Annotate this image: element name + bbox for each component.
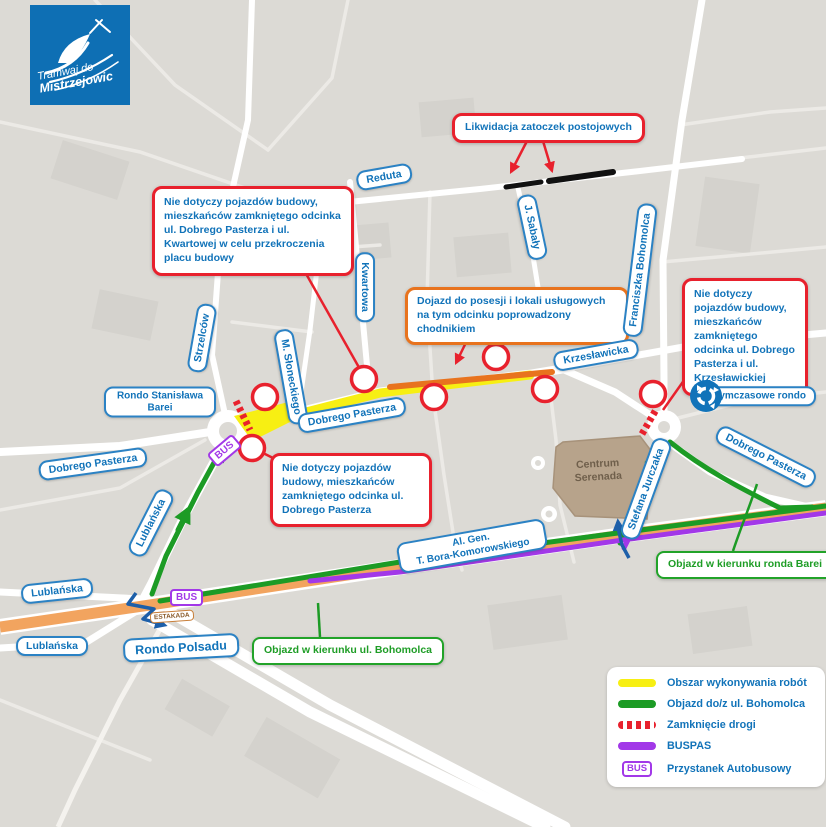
street-label-rondo-barei: Rondo Stanisława Barei bbox=[104, 387, 216, 418]
legend-label-detour: Objazd do/z ul. Bohomolca bbox=[667, 698, 805, 710]
callout-construction-exception-kwartowa: Nie dotyczy pojazdów budowy, mieszkańców… bbox=[152, 186, 354, 276]
roundabout-icon bbox=[688, 378, 724, 414]
legend-swatch-detour bbox=[617, 700, 657, 708]
legend-label-closure: Zamknięcie drogi bbox=[667, 719, 756, 731]
bus-stop-badge-polsadu: BUS bbox=[170, 589, 203, 606]
legend-swatch-buspas bbox=[617, 742, 657, 750]
serenada-label: Centrum Serenada bbox=[562, 456, 633, 486]
legend-row-detour: Objazd do/z ul. Bohomolca bbox=[617, 698, 815, 710]
callout-detour-bohomolca: Objazd w kierunku ul. Bohomolca bbox=[252, 637, 444, 665]
legend-row-bus-stop: BUS Przystanek Autobusowy bbox=[617, 761, 815, 777]
callout-detour-barei: Objazd w kierunku ronda Barei bbox=[656, 551, 826, 579]
legend-label-works: Obszar wykonywania robót bbox=[667, 677, 807, 689]
legend-row-buspas: BUSPAS bbox=[617, 740, 815, 752]
street-label-lublanska-west-2: Lublańska bbox=[16, 636, 88, 656]
callout-construction-exception-pasterza: Nie dotyczy pojazdów budowy, mieszkańców… bbox=[270, 453, 432, 527]
callout-parking-bays-removal: Likwidacja zatoczek postojowych bbox=[452, 113, 645, 143]
project-logo: Tramwaj do Mistrzejowic bbox=[30, 5, 130, 105]
street-label-kwartowa: Kwartowa bbox=[355, 252, 375, 322]
map-canvas: Tramwaj do Mistrzejowic Nie dotyczy poja… bbox=[0, 0, 826, 827]
callout-sidewalk-access: Dojazd do posesji i lokali usługowych na… bbox=[405, 287, 629, 345]
legend-swatch-bus-stop: BUS bbox=[617, 761, 657, 777]
legend-label-buspas: BUSPAS bbox=[667, 740, 711, 752]
legend-label-bus-stop: Przystanek Autobusowy bbox=[667, 763, 791, 775]
legend-row-closure: Zamknięcie drogi bbox=[617, 719, 815, 731]
legend-row-works: Obszar wykonywania robót bbox=[617, 677, 815, 689]
removed-parking-bays bbox=[506, 172, 613, 187]
legend-swatch-closure bbox=[617, 721, 657, 729]
legend-swatch-works bbox=[617, 679, 657, 687]
legend: Obszar wykonywania robót Objazd do/z ul.… bbox=[607, 667, 825, 787]
